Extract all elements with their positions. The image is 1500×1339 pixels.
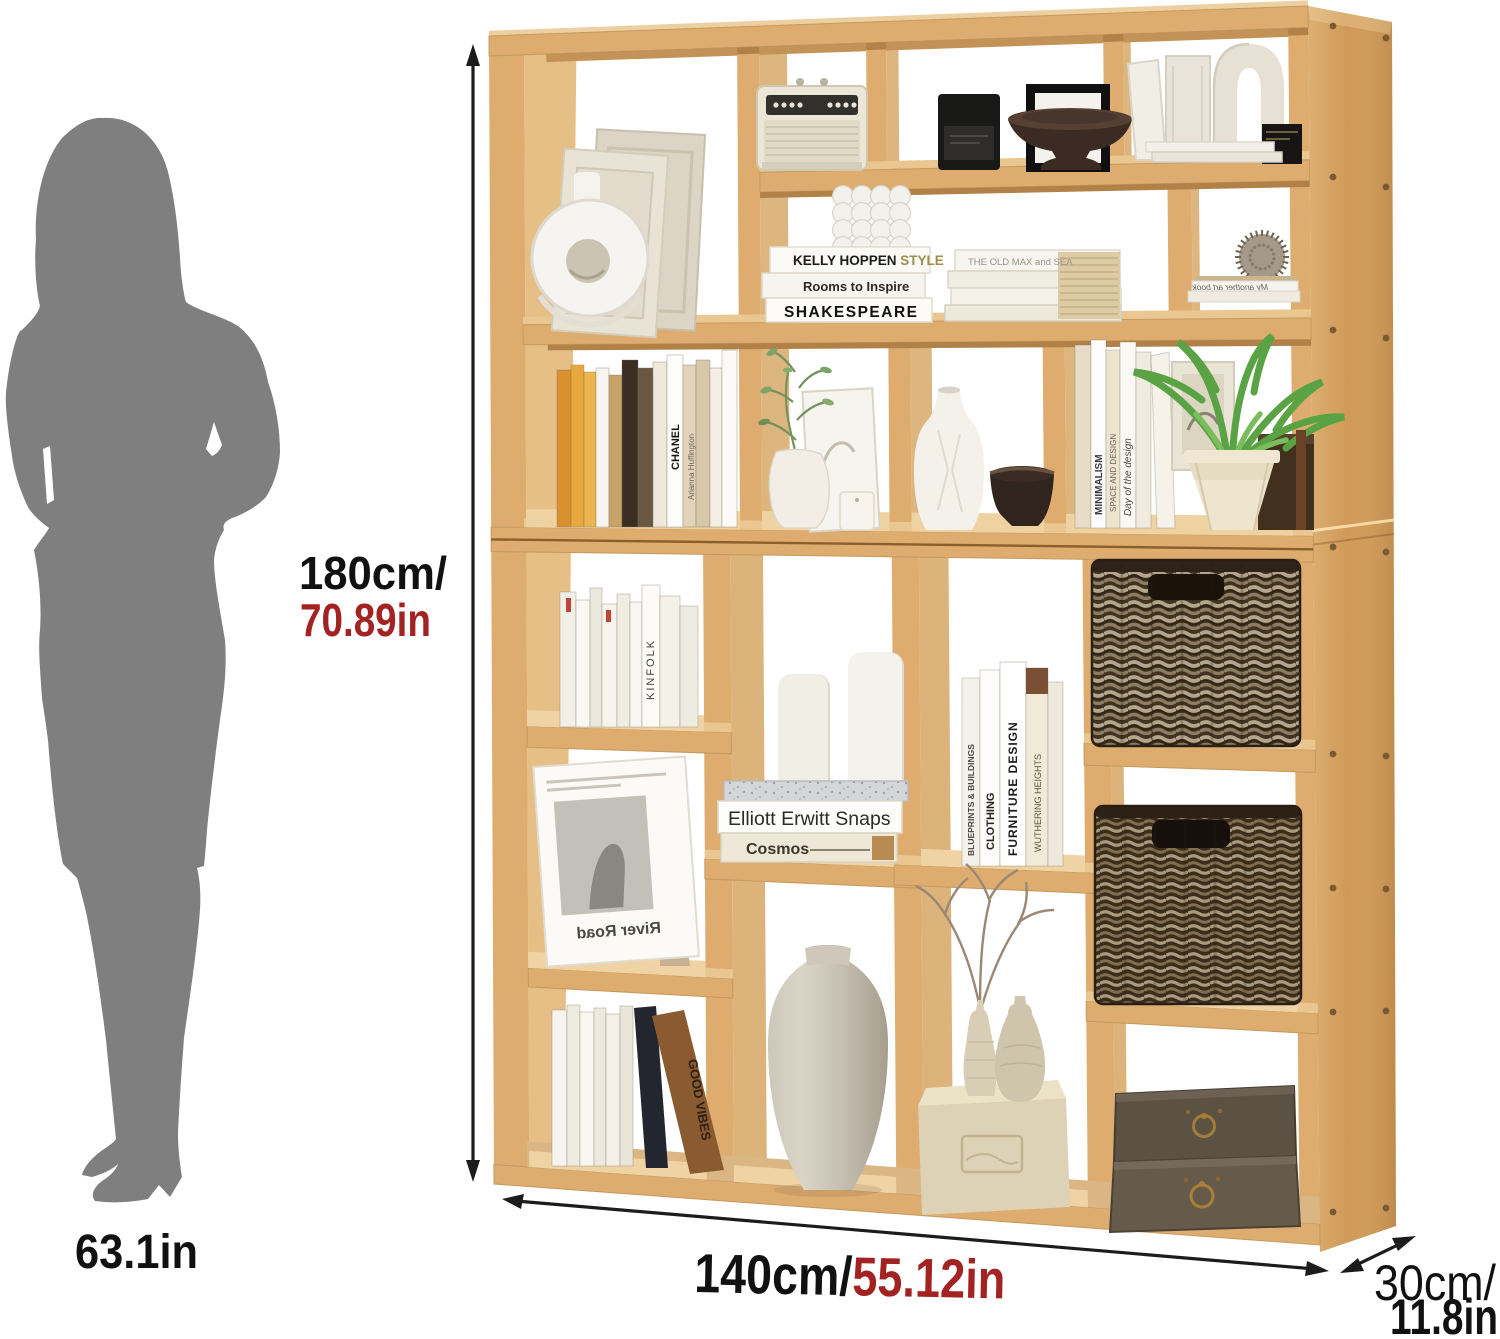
- svg-text:KELLY HOPPEN STYLE: KELLY HOPPEN STYLE: [793, 253, 944, 268]
- svg-text:BLUEPRINTS & BUILDINGS: BLUEPRINTS & BUILDINGS: [966, 744, 976, 856]
- svg-text:Rooms to Inspire: Rooms to Inspire: [803, 279, 909, 294]
- svg-text:70.89in: 70.89in: [300, 594, 431, 646]
- svg-text:CHANEL: CHANEL: [670, 424, 682, 470]
- svg-text:THE OLD MAX and SEA: THE OLD MAX and SEA: [968, 257, 1073, 268]
- svg-text:11.8in: 11.8in: [1390, 1289, 1498, 1339]
- svg-text:Arianna Huffington: Arianna Huffington: [687, 434, 696, 500]
- svg-text:MINIMALISM: MINIMALISM: [1094, 454, 1105, 515]
- svg-text:Day of the design: Day of the design: [1123, 438, 1134, 516]
- svg-text:KINFOLK: KINFOLK: [645, 639, 657, 700]
- svg-text:63.1in: 63.1in: [75, 1226, 198, 1279]
- svg-text:SHAKESPEARE: SHAKESPEARE: [784, 304, 919, 321]
- svg-text:55.12in: 55.12in: [852, 1245, 1006, 1310]
- svg-text:CLOTHING: CLOTHING: [985, 793, 997, 850]
- svg-text:WUTHERING HEIGHTS: WUTHERING HEIGHTS: [1033, 754, 1043, 852]
- svg-text:FURNITURE DESIGN: FURNITURE DESIGN: [1006, 721, 1020, 856]
- svg-text:180cm/: 180cm/: [299, 547, 447, 599]
- svg-text:Cosmos: Cosmos: [746, 841, 809, 858]
- svg-text:SPACE AND DESIGN: SPACE AND DESIGN: [1109, 434, 1118, 512]
- svg-text:Elliott Erwitt Snaps: Elliott Erwitt Snaps: [728, 808, 891, 830]
- svg-text:140cm/: 140cm/: [694, 1242, 853, 1307]
